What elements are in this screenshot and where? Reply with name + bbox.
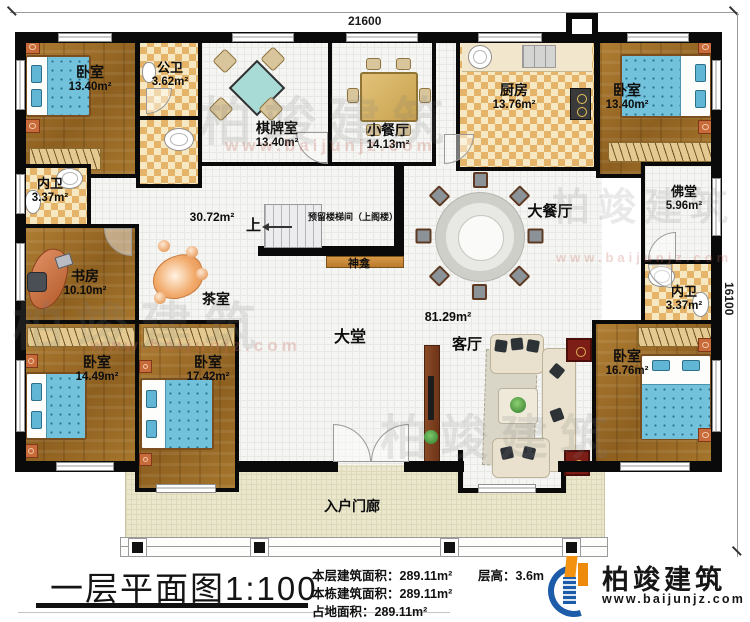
nightstand-icon	[25, 119, 40, 133]
stat-floor-area: 本层建筑面积：289.11m²	[312, 565, 452, 584]
window	[712, 178, 721, 236]
nightstand-icon	[24, 354, 38, 368]
window	[712, 360, 721, 432]
office-chair-icon	[27, 272, 47, 292]
wardrobe-icon	[27, 327, 135, 347]
room-label: 卧室17.42m²	[187, 354, 230, 385]
porch-edge	[120, 537, 608, 557]
sofa	[490, 334, 544, 374]
wardrobe-icon	[608, 142, 714, 162]
plant-icon	[424, 430, 438, 444]
exterior-wall-bottom	[404, 461, 464, 472]
stove-icon	[570, 88, 591, 120]
chair-icon	[472, 284, 487, 300]
dimension-top-value: 21600	[348, 14, 381, 28]
title-underline	[36, 603, 308, 608]
window	[156, 484, 216, 493]
wardrobe-icon	[143, 327, 235, 347]
stool-icon	[186, 246, 198, 258]
brand-logo-icon	[548, 556, 598, 610]
dimension-tick	[7, 6, 17, 16]
room-label: 大堂	[334, 328, 366, 347]
nightstand-icon	[139, 360, 152, 373]
stool-icon	[196, 268, 208, 280]
room-label: 厨房13.76m²	[493, 82, 536, 113]
window	[16, 174, 25, 214]
room-label: 小餐厅14.13m²	[367, 122, 410, 153]
room-label: 卧室16.76m²	[606, 348, 649, 379]
stat-floor-height: 层高：3.6m	[478, 565, 544, 584]
room-label: 书房10.10m²	[64, 268, 107, 299]
window	[16, 60, 25, 110]
stool-icon	[158, 240, 170, 252]
room-label: 内卫3.37m²	[666, 284, 702, 313]
shrine-label: 神龛	[348, 255, 370, 271]
stat-building-area: 本栋建筑面积：289.11m²	[312, 583, 452, 602]
room-bath-lobby	[136, 116, 202, 188]
chair-icon	[396, 58, 411, 70]
chair-icon	[416, 229, 432, 244]
stair-arrow-icon	[268, 226, 292, 228]
dimension-right-value: 16100	[722, 282, 736, 315]
window	[232, 33, 294, 42]
chair-icon	[366, 58, 381, 70]
counter-tiles	[522, 45, 556, 68]
chair-icon	[419, 88, 431, 103]
round-table-icon	[436, 193, 524, 281]
exterior-wall-bottom	[238, 461, 338, 472]
sofa	[492, 438, 550, 478]
brand-url: www.baijunjz.com	[602, 592, 745, 606]
window	[620, 462, 690, 471]
floor-plan-canvas: 21600 16100	[0, 0, 750, 622]
room-label: 棋牌室13.40m²	[256, 120, 299, 151]
window	[346, 33, 418, 42]
room-label: 客厅	[452, 336, 482, 354]
hall-area-label: 30.72m²	[190, 210, 235, 224]
window	[712, 60, 721, 110]
chair-icon	[473, 172, 488, 188]
nightstand-icon	[139, 453, 152, 466]
room-label: 茶室	[202, 291, 230, 308]
room-label: 卧室14.49m²	[76, 354, 119, 385]
window	[478, 33, 542, 42]
room-label: 入户门廊	[324, 498, 380, 515]
window	[478, 484, 536, 493]
room-label: 卧室13.40m²	[606, 82, 649, 113]
room-label: 内卫3.37m²	[32, 176, 68, 205]
side-cabinet	[566, 338, 592, 362]
dimension-line-right	[737, 12, 738, 557]
column	[251, 539, 268, 556]
window	[627, 33, 689, 42]
living-area-label: 81.29m²	[425, 310, 472, 325]
chimney	[566, 13, 598, 40]
sink-icon	[468, 45, 492, 69]
window	[16, 360, 25, 432]
washbasin-icon	[164, 128, 194, 151]
column	[441, 539, 458, 556]
window	[56, 462, 114, 471]
chair-icon	[347, 88, 359, 103]
stair-up-label: 上	[246, 214, 261, 235]
bed	[140, 378, 214, 450]
stat-land-area: 占地面积：289.11m²	[312, 601, 427, 620]
room-label: 佛堂5.96m²	[666, 184, 702, 213]
column	[563, 539, 580, 556]
stair-note: 预留楼梯间（上阁楼）	[308, 210, 398, 223]
room-label: 大餐厅	[527, 203, 572, 221]
room-label: 公卫3.62m²	[152, 60, 188, 89]
stool-icon	[154, 292, 166, 304]
window	[16, 243, 25, 301]
nightstand-icon	[24, 444, 38, 458]
tv-icon	[428, 376, 434, 420]
plant-icon	[510, 397, 526, 413]
chair-icon	[528, 229, 544, 244]
room-label: 卧室13.40m²	[69, 64, 112, 95]
dimension-line-top	[10, 12, 738, 13]
dining-table-icon	[360, 72, 418, 122]
column	[129, 539, 146, 556]
window	[58, 33, 112, 42]
